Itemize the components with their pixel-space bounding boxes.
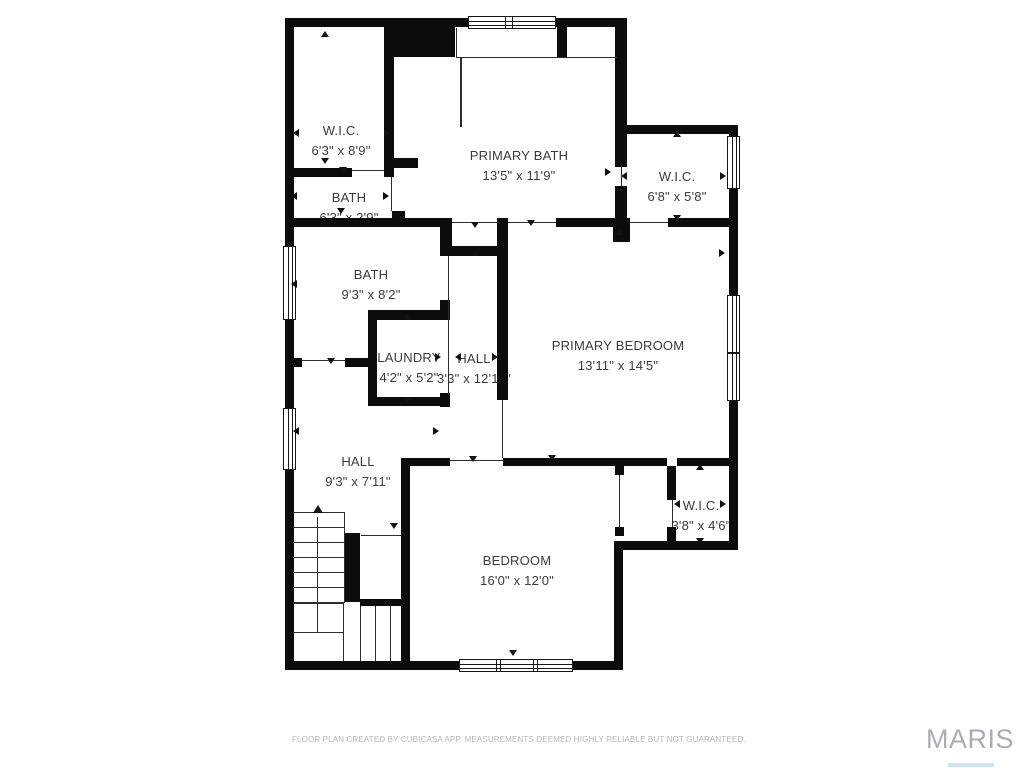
room-dims: 13'5" x 11'9" — [470, 166, 568, 186]
door-arrow — [673, 215, 681, 221]
door-arrow — [403, 398, 411, 404]
door-arrow — [327, 358, 335, 364]
wall — [667, 527, 676, 541]
opening-line — [361, 535, 401, 536]
stairs-up-arrow — [313, 505, 323, 513]
room-dims: 6'8" x 5'8" — [647, 187, 706, 207]
room-label: BATH9'3" x 8'2" — [341, 265, 400, 305]
room-name: HALL — [325, 452, 391, 472]
wall — [345, 358, 368, 367]
room-label: PRIMARY BEDROOM13'11" x 14'5" — [552, 336, 685, 376]
door-arrow — [291, 192, 297, 200]
stair-line — [343, 603, 344, 661]
window-glass-line — [460, 668, 572, 669]
door-arrow — [615, 229, 623, 235]
door-arrow — [455, 353, 461, 361]
wall — [614, 541, 738, 550]
glass-line — [460, 57, 462, 127]
room-dims: 3'8" x 4'6" — [671, 516, 730, 536]
window — [468, 16, 556, 29]
door-arrow — [293, 129, 299, 137]
door-arrow — [384, 129, 390, 137]
opening-line — [302, 360, 345, 361]
wall — [497, 218, 508, 400]
wall — [368, 310, 377, 403]
door-arrow — [509, 650, 517, 656]
door-arrow — [527, 220, 535, 226]
door-arrow — [696, 464, 704, 470]
window-mullion — [512, 17, 513, 28]
glass-line — [456, 57, 617, 58]
room-label: W.I.C.6'3" x 8'9" — [311, 121, 370, 161]
wall — [615, 527, 624, 536]
door-arrow — [605, 168, 611, 176]
room-label: W.I.C.6'8" x 5'8" — [647, 167, 706, 207]
stair-line — [293, 632, 344, 633]
wall — [285, 470, 294, 670]
window — [283, 408, 296, 470]
room-name: BATH — [319, 188, 378, 208]
stair-line — [293, 603, 344, 604]
door-arrow — [293, 427, 299, 435]
window — [727, 136, 740, 189]
window — [727, 353, 740, 401]
wall — [440, 393, 450, 407]
opening-line — [672, 500, 673, 527]
stair-line — [360, 606, 361, 661]
wall — [729, 400, 738, 550]
door-arrow — [492, 353, 498, 361]
room-dims: 13'11" x 14'5" — [552, 356, 685, 376]
door-arrow — [321, 158, 329, 164]
window-mullion — [537, 660, 538, 671]
wall — [401, 458, 410, 670]
room-name: PRIMARY BATH — [470, 146, 568, 166]
wall — [729, 188, 738, 297]
door-arrow — [720, 500, 726, 508]
stair-line — [390, 606, 391, 661]
door-arrow — [339, 167, 347, 173]
door-arrow — [720, 172, 726, 180]
door-arrow — [674, 500, 680, 508]
window-glass-line — [292, 409, 293, 469]
wall — [285, 661, 460, 670]
floor-plan: W.I.C.6'3" x 8'9"BATH6'3" x 2'9"PRIMARY … — [0, 0, 1024, 768]
room-name: W.I.C. — [311, 121, 370, 141]
door-arrow — [471, 222, 479, 228]
stair-line — [317, 517, 318, 632]
door-arrow — [291, 280, 297, 288]
window-glass-line — [732, 137, 733, 188]
opening-line — [448, 256, 449, 395]
window-glass-line — [732, 354, 733, 400]
room-dims: 4'2" x 5'2" — [377, 368, 440, 388]
wall — [556, 218, 621, 227]
door-arrow — [471, 250, 479, 256]
door-arrow — [719, 249, 725, 257]
window-mullion — [500, 660, 501, 671]
wall — [615, 18, 627, 167]
room-name: W.I.C. — [647, 167, 706, 187]
window-mullion — [496, 660, 497, 671]
logo-fragment — [948, 763, 994, 767]
stair-line — [293, 542, 344, 543]
window-mullion — [505, 17, 506, 28]
window-glass-line — [288, 409, 289, 469]
door-arrow — [696, 538, 704, 544]
window — [459, 659, 573, 672]
room-label: LAUNDRY4'2" x 5'2" — [377, 348, 440, 388]
window-mullion — [533, 660, 534, 671]
opening-line — [619, 475, 620, 527]
window-glass-line — [732, 296, 733, 352]
window-glass-line — [288, 247, 289, 319]
room-dims: 9'3" x 8'2" — [341, 285, 400, 305]
room-name: BATH — [341, 265, 400, 285]
window — [727, 295, 740, 353]
wall — [285, 18, 468, 27]
stair-line — [293, 557, 344, 558]
door-arrow — [403, 313, 411, 319]
room-label: BEDROOM16'0" x 12'0" — [480, 551, 554, 591]
door-arrow — [383, 192, 389, 200]
room-dims: 9'3" x 7'11" — [325, 472, 391, 492]
door-arrow — [337, 208, 345, 214]
door-arrow — [621, 172, 627, 180]
wall — [614, 550, 623, 670]
stair-line — [293, 572, 344, 573]
stair-line — [293, 527, 344, 528]
window-glass-line — [460, 664, 572, 665]
window-glass-line — [736, 137, 737, 188]
room-label: HALL9'3" x 7'11" — [325, 452, 391, 492]
door-arrow — [469, 456, 477, 462]
wall — [393, 27, 455, 57]
stair-line — [375, 606, 376, 661]
wall — [285, 358, 302, 367]
disclaimer-text: FLOOR PLAN CREATED BY CUBICASA APP. MEAS… — [292, 735, 746, 744]
door-arrow — [435, 353, 441, 361]
wall — [557, 27, 567, 57]
opening-line — [391, 177, 392, 211]
door-arrow — [321, 31, 329, 37]
glass-line — [456, 28, 457, 57]
wall — [360, 599, 401, 606]
wall — [615, 466, 624, 475]
wall — [344, 533, 360, 602]
wall — [285, 218, 443, 227]
stair-line — [344, 512, 345, 603]
room-label: PRIMARY BATH13'5" x 11'9" — [470, 146, 568, 186]
opening-line — [352, 170, 384, 171]
opening-line — [630, 222, 668, 223]
room-name: BEDROOM — [480, 551, 554, 571]
wall — [667, 466, 676, 500]
door-arrow — [548, 455, 556, 461]
door-arrow — [673, 131, 681, 137]
wall — [573, 661, 623, 670]
stair-line — [293, 587, 344, 588]
window-glass-line — [736, 296, 737, 352]
room-name: PRIMARY BEDROOM — [552, 336, 685, 356]
opening-line — [502, 400, 503, 458]
window-glass-line — [736, 354, 737, 400]
wall — [394, 158, 418, 168]
door-arrow — [433, 427, 439, 435]
room-name: LAUNDRY — [377, 348, 440, 368]
door-arrow — [390, 523, 398, 529]
wall — [503, 458, 667, 466]
room-dims: 16'0" x 12'0" — [480, 571, 554, 591]
maris-watermark: MARIS — [926, 724, 1014, 755]
